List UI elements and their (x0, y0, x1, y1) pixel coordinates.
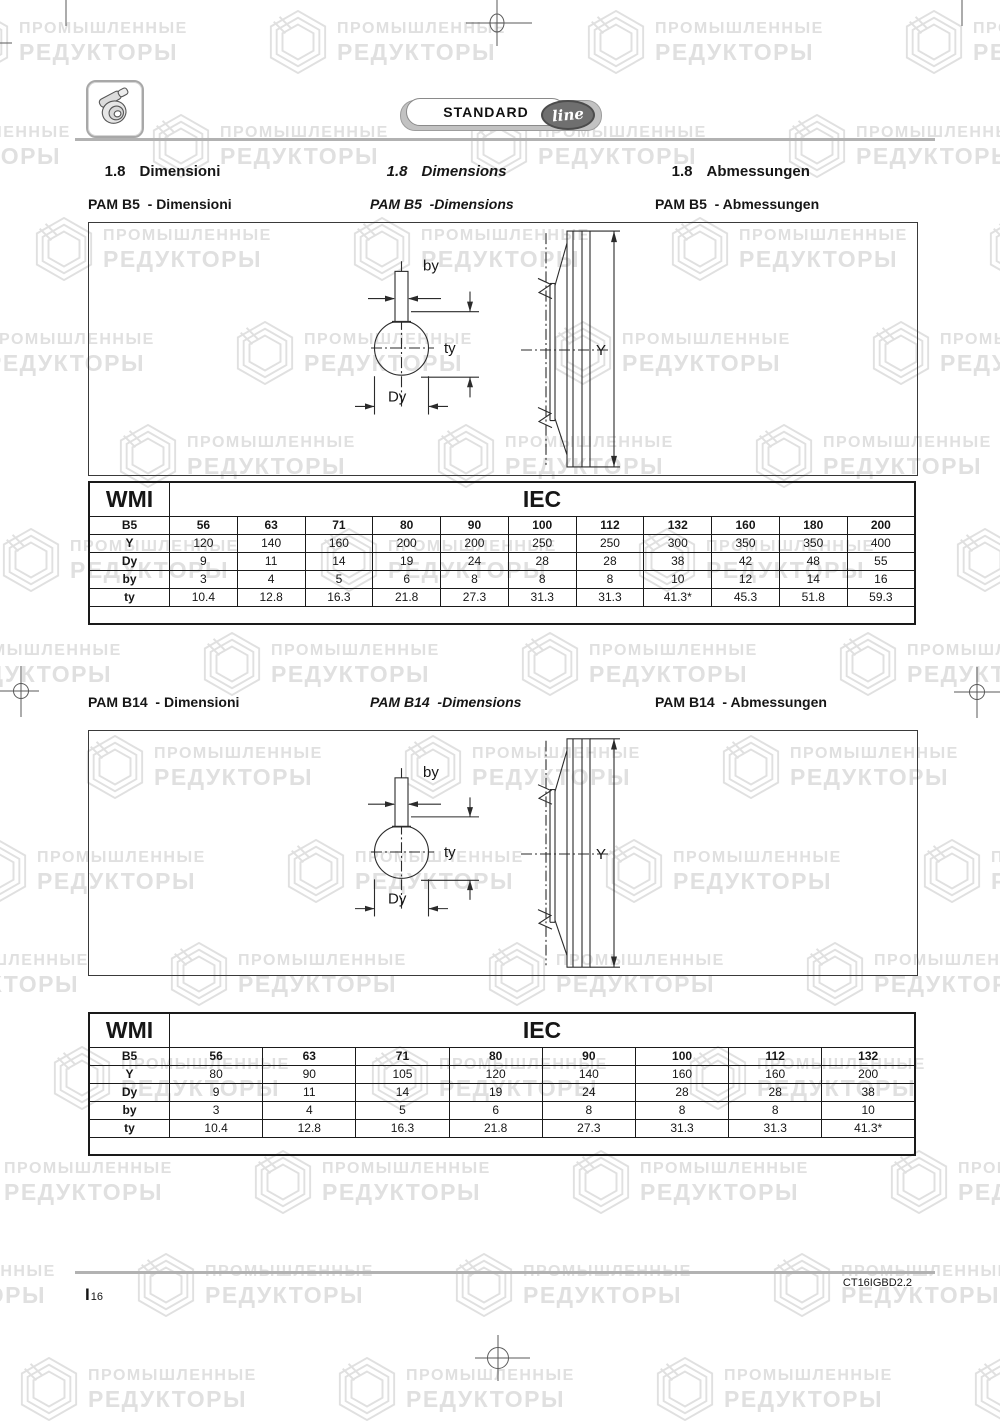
table-cell: 28 (576, 553, 644, 571)
table-cell: 19 (449, 1084, 542, 1102)
table-cell: 11 (263, 1084, 356, 1102)
table-cell: 48 (779, 553, 847, 571)
table-cell: 14 (356, 1084, 449, 1102)
table-cell: 28 (729, 1084, 822, 1102)
dim-label-dy: Dy (388, 892, 407, 908)
table-cell: 4 (263, 1102, 356, 1120)
table-cell: 12 (712, 571, 780, 589)
table-cell: 45.3 (712, 589, 780, 607)
table-cell: 12.8 (237, 589, 305, 607)
header-rule (75, 138, 935, 141)
table-cell: 200 (847, 517, 915, 535)
table-cell: 200 (441, 535, 509, 553)
table-cell: 55 (847, 553, 915, 571)
table-group-header: IEC (170, 1013, 916, 1048)
table-cell: 11 (237, 553, 305, 571)
table-cell: 10.4 (170, 589, 238, 607)
table-group-row: WMIIEC (89, 482, 915, 517)
table-row: ty10.412.816.321.827.331.331.341.3*45.35… (89, 589, 915, 607)
table-row: B55663718090100112132 (89, 1048, 915, 1066)
table-cell: 80 (449, 1048, 542, 1066)
table-corner-header: WMI (89, 1013, 170, 1048)
pam-b14-subtitle-it: PAM B14 - Dimensioni (88, 694, 239, 710)
table-cell: 10.4 (170, 1120, 263, 1138)
table-corner-header: WMI (89, 482, 170, 517)
row-label: Y (89, 535, 170, 553)
table-cell: 42 (712, 553, 780, 571)
table-cell: 140 (542, 1066, 635, 1084)
table-cell: 27.3 (542, 1120, 635, 1138)
table-row: by345688810 (89, 1102, 915, 1120)
table-cell: 71 (356, 1048, 449, 1066)
dim-label-y: Y (596, 847, 606, 863)
page: STANDARD line 1.8Dimensioni 1.8Dimension… (0, 0, 1000, 1383)
table-cell: 16.3 (305, 589, 373, 607)
table-cell: 90 (263, 1066, 356, 1084)
row-label: Y (89, 1066, 170, 1084)
table-cell: 4 (237, 571, 305, 589)
dim-label-by: by (423, 257, 439, 274)
table-cell: 16.3 (356, 1120, 449, 1138)
table-cell: 9 (170, 553, 238, 571)
table-cell: 132 (644, 517, 712, 535)
table-cell: 24 (542, 1084, 635, 1102)
document-code: CT16IGBD2.2 (843, 1277, 912, 1289)
footer-rule (75, 1271, 935, 1274)
row-label: Dy (89, 553, 170, 571)
worm-gear-logo (86, 80, 144, 138)
table-cell: 41.3* (822, 1120, 915, 1138)
table-cell: 31.3 (635, 1120, 728, 1138)
table-spacer-row (89, 607, 915, 625)
table-cell: 80 (373, 517, 441, 535)
table-cell: 14 (779, 571, 847, 589)
page-number: I16 (85, 1285, 103, 1305)
table-cell: 3 (170, 571, 238, 589)
pam-b14-subtitle-de: PAM B14 - Abmessungen (655, 694, 827, 710)
table-cell: 350 (712, 535, 780, 553)
table-cell: 132 (822, 1048, 915, 1066)
table-cell: 250 (508, 535, 576, 553)
table-cell: 8 (635, 1102, 728, 1120)
table-cell: 38 (822, 1084, 915, 1102)
row-label: by (89, 1102, 170, 1120)
table-row: B55663718090100112132160180200 (89, 517, 915, 535)
table-cell: 400 (847, 535, 915, 553)
table-cell: 31.3 (508, 589, 576, 607)
table-row: Y8090105120140160160200 (89, 1066, 915, 1084)
table-cell: 90 (441, 517, 509, 535)
table-cell: 250 (576, 535, 644, 553)
table-row: by345688810121416 (89, 571, 915, 589)
table-cell: 51.8 (779, 589, 847, 607)
table-cell: 5 (356, 1102, 449, 1120)
table-cell: 100 (508, 517, 576, 535)
row-label: B5 (89, 517, 170, 535)
table-cell: 105 (356, 1066, 449, 1084)
standard-line-badge: STANDARD line (400, 100, 602, 131)
table-row: Dy911141924282838424855 (89, 553, 915, 571)
row-label: Dy (89, 1084, 170, 1102)
table-cell: 71 (305, 517, 373, 535)
row-label: by (89, 571, 170, 589)
standard-label: STANDARD (443, 104, 529, 120)
table-cell: 16 (847, 571, 915, 589)
pam-b5-dimension-diagram: bytyDyY (88, 222, 918, 476)
table-group-header: IEC (170, 482, 916, 517)
pam-b14-dimension-diagram: bytyDyY (88, 730, 918, 976)
dim-label-y: Y (596, 342, 606, 359)
table-cell: 180 (779, 517, 847, 535)
table-cell: 90 (542, 1048, 635, 1066)
table-cell: 160 (712, 517, 780, 535)
table-cell: 10 (822, 1102, 915, 1120)
table-cell: 160 (729, 1066, 822, 1084)
table-cell: 112 (576, 517, 644, 535)
table-cell: 300 (644, 535, 712, 553)
heading-german: 1.8Abmessungen (655, 146, 810, 197)
table-cell: 120 (170, 535, 238, 553)
table-row: ty10.412.816.321.827.331.331.341.3* (89, 1120, 915, 1138)
table-cell: 41.3* (644, 589, 712, 607)
table-cell: 56 (170, 517, 238, 535)
table-cell: 27.3 (441, 589, 509, 607)
table-cell: 14 (305, 553, 373, 571)
table-cell: 6 (373, 571, 441, 589)
table-cell: 63 (237, 517, 305, 535)
row-label: ty (89, 589, 170, 607)
table-cell: 31.3 (576, 589, 644, 607)
dim-label-by: by (423, 765, 439, 781)
table-cell: 56 (170, 1048, 263, 1066)
table-cell: 8 (542, 1102, 635, 1120)
table-cell: 59.3 (847, 589, 915, 607)
table-cell: 10 (644, 571, 712, 589)
dim-label-ty: ty (444, 340, 456, 357)
table-row: Y120140160200200250250300350350400 (89, 535, 915, 553)
table-cell: 160 (305, 535, 373, 553)
table-spacer-row (89, 1138, 915, 1156)
table-cell: 200 (822, 1066, 915, 1084)
line-label: line (551, 105, 584, 126)
table-cell: 31.3 (729, 1120, 822, 1138)
line-oval: line (541, 100, 595, 130)
table-cell: 140 (237, 535, 305, 553)
table-cell: 200 (373, 535, 441, 553)
table-group-row: WMIIEC (89, 1013, 915, 1048)
dim-label-ty: ty (444, 845, 456, 861)
table-cell: 19 (373, 553, 441, 571)
pam-b5-subtitle-it: PAM B5 - Dimensioni (88, 196, 232, 212)
table-cell: 120 (449, 1066, 542, 1084)
dimension-table: WMIIECB55663718090100112132Y809010512014… (88, 1012, 916, 1156)
table-cell: 8 (441, 571, 509, 589)
worm-gear-icon (92, 84, 138, 135)
dim-label-dy: Dy (388, 388, 407, 405)
table-cell: 3 (170, 1102, 263, 1120)
table-cell: 160 (635, 1066, 728, 1084)
table-row: Dy911141924282838 (89, 1084, 915, 1102)
table-cell: 350 (779, 535, 847, 553)
pam-b5-subtitle-en: PAM B5 -Dimensions (370, 196, 514, 212)
pam-b14-subtitle-en: PAM B14 -Dimensions (370, 694, 521, 710)
row-label: ty (89, 1120, 170, 1138)
heading-italian: 1.8Dimensioni (88, 146, 220, 197)
table-cell: 24 (441, 553, 509, 571)
table-cell: 8 (508, 571, 576, 589)
table-cell: 63 (263, 1048, 356, 1066)
table-cell: 21.8 (449, 1120, 542, 1138)
dimension-table: WMIIECB55663718090100112132160180200Y120… (88, 481, 916, 625)
table-cell: 100 (635, 1048, 728, 1066)
table-cell: 9 (170, 1084, 263, 1102)
pam-b5-subtitle-de: PAM B5 - Abmessungen (655, 196, 819, 212)
table-cell: 12.8 (263, 1120, 356, 1138)
row-label: B5 (89, 1048, 170, 1066)
table-cell: 8 (576, 571, 644, 589)
pam-b5-table: WMIIECB55663718090100112132160180200Y120… (88, 481, 916, 625)
table-cell: 5 (305, 571, 373, 589)
table-cell: 8 (729, 1102, 822, 1120)
table-cell: 28 (508, 553, 576, 571)
pam-b14-table: WMIIECB55663718090100112132Y809010512014… (88, 1012, 916, 1156)
heading-english: 1.8Dimensions (370, 146, 507, 197)
table-cell: 112 (729, 1048, 822, 1066)
table-cell: 38 (644, 553, 712, 571)
table-cell: 21.8 (373, 589, 441, 607)
table-cell: 80 (170, 1066, 263, 1084)
table-cell: 28 (635, 1084, 728, 1102)
table-cell: 6 (449, 1102, 542, 1120)
